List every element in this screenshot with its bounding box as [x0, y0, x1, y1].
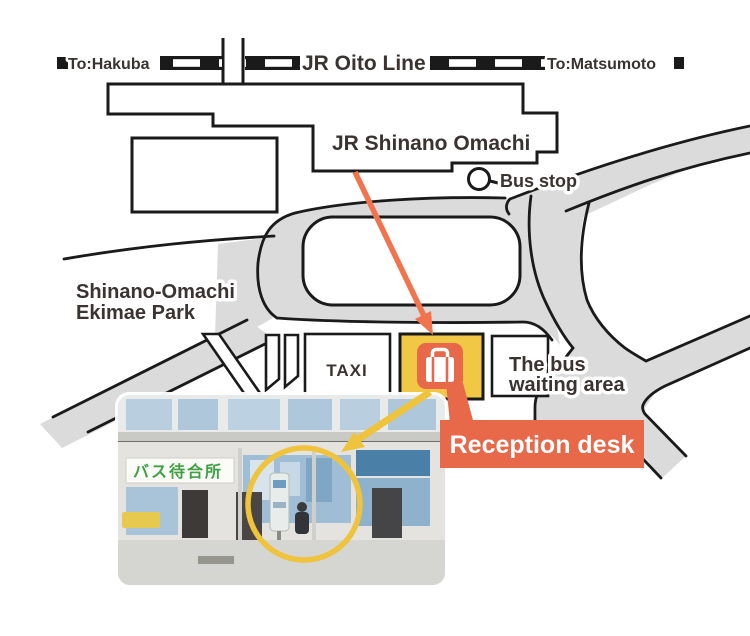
reception-desk-callout: Reception desk	[440, 420, 644, 468]
station-access-map: バス待合所	[0, 0, 750, 636]
side-building	[132, 138, 277, 212]
station-name-label: JR Shinano Omachi	[332, 132, 530, 155]
bus-stop-circle-icon	[469, 169, 490, 190]
bus-waiting-label-line1: The bus	[509, 354, 586, 376]
bus-stop-label: Bus stop	[500, 171, 577, 191]
bus-waiting-photo: バス待合所	[115, 392, 450, 588]
shop-strip-1	[266, 335, 279, 390]
rail-destination-right: To:Matsumoto	[547, 56, 656, 73]
rail-destination-left: To:Hakuba	[68, 56, 150, 73]
shop-strip-2	[285, 335, 298, 387]
bus-waiting-label-line2: waiting area	[508, 374, 625, 396]
bus-stop-marker	[469, 169, 499, 190]
taxi-label: TAXI	[326, 361, 367, 380]
reception-desk-label: Reception desk	[450, 431, 635, 459]
rail-line-name: JR Oito Line	[302, 52, 426, 75]
rail-end-tick-right	[674, 57, 684, 69]
rail-end-tick-left	[57, 57, 68, 69]
park-label-line2: Ekimae Park	[76, 302, 196, 324]
photo-sign-text: バス待合所	[133, 462, 223, 481]
park-label-line1: Shinano-Omachi	[76, 281, 235, 303]
map-canvas: バス待合所	[0, 0, 750, 636]
